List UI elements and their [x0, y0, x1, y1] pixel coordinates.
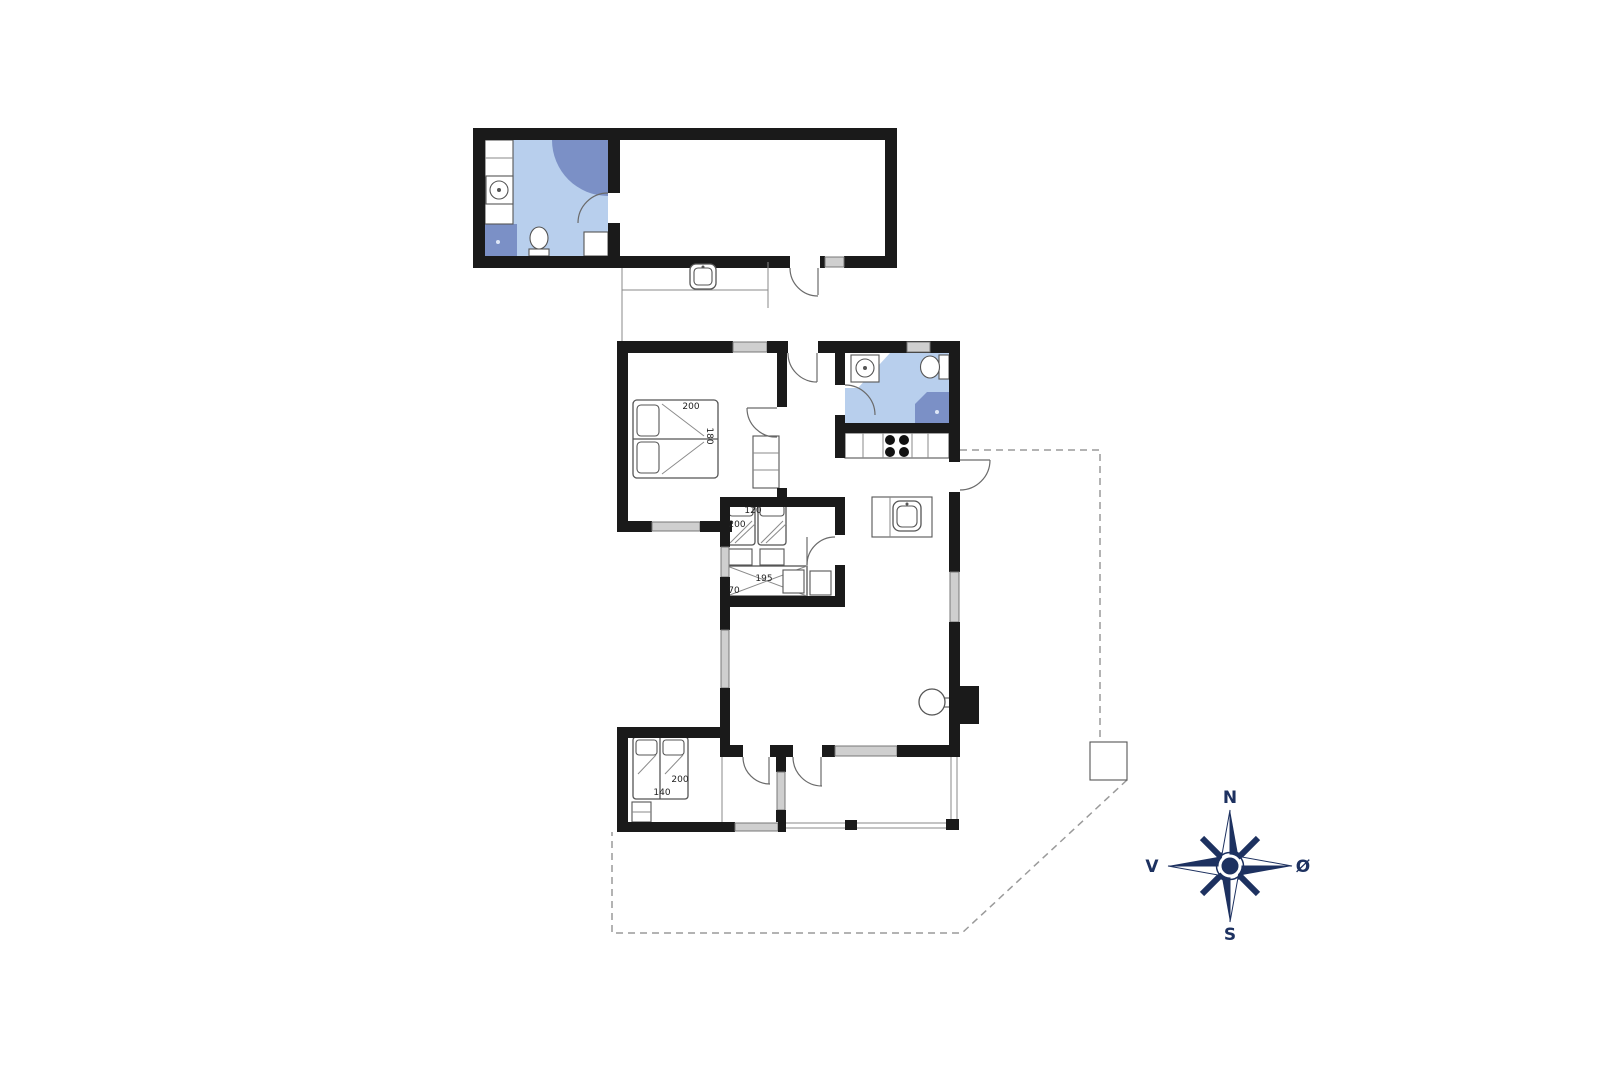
bedroom3-bed-length-label: 200 — [671, 775, 688, 785]
pillow-icon — [637, 405, 659, 436]
porch-door — [793, 757, 822, 786]
entry-hall-door — [743, 757, 770, 784]
annex-entry-door — [790, 268, 818, 296]
wardrobe — [753, 436, 779, 488]
window — [652, 522, 700, 531]
floor-plan-page: N S V Ø 200 180 120 200 195 70 200 140 — [0, 0, 1600, 1066]
annex — [473, 128, 897, 296]
toilet-icon — [921, 355, 950, 379]
bedside-table — [729, 549, 752, 565]
terrace-door — [960, 460, 990, 490]
outdoor-sink-icon — [690, 264, 716, 289]
drain-icon — [935, 410, 939, 414]
bedroom1-width-label: 200 — [682, 402, 699, 412]
annex-shower-floor — [485, 224, 517, 256]
porch-post — [845, 820, 857, 830]
bedroom2-bed-length-label: 200 — [728, 520, 745, 530]
pillow-icon — [637, 442, 659, 473]
bedside-table — [760, 549, 784, 565]
compass-west-label: V — [1145, 857, 1159, 877]
bedroom3-bed-width-label: 140 — [653, 788, 670, 798]
main-house — [617, 341, 990, 832]
annex-window — [825, 257, 844, 267]
window — [950, 572, 959, 622]
window — [835, 746, 897, 756]
bunk-width-label: 70 — [728, 586, 740, 596]
bedroom2-beds — [727, 503, 831, 596]
bedroom2-door — [807, 537, 835, 565]
window — [721, 547, 729, 577]
window — [907, 342, 930, 352]
window — [735, 823, 778, 831]
kitchen-counter — [845, 433, 949, 458]
terrace-table — [1090, 742, 1127, 780]
kitchen-sink-icon — [893, 501, 921, 531]
bedroom1-door — [747, 408, 777, 437]
kitchen — [845, 433, 949, 537]
porch-post — [946, 819, 959, 830]
bedroom1-depth-label: 180 — [704, 427, 714, 444]
cabinet — [810, 571, 831, 595]
window — [733, 342, 767, 352]
compass-north-label: N — [1223, 788, 1237, 808]
compass-south-label: S — [1224, 925, 1236, 945]
floor-plan: N S V Ø 200 180 120 200 195 70 200 140 — [0, 0, 1600, 1066]
compass-rose: N S V Ø — [1145, 788, 1310, 945]
bunk-length-label: 195 — [755, 574, 772, 584]
main-bathroom — [845, 353, 949, 423]
annex-cabinet — [584, 232, 608, 256]
toilet-icon — [529, 227, 549, 256]
covered-porch — [786, 757, 959, 830]
pillow-icon — [663, 740, 684, 755]
pillow-icon — [783, 570, 804, 593]
window — [777, 772, 785, 810]
pillow-icon — [636, 740, 657, 755]
drain-icon — [496, 240, 500, 244]
window — [721, 630, 729, 688]
outdoor-sink-area — [622, 262, 768, 341]
bedroom2-bed-width-label: 120 — [744, 506, 761, 516]
compass-east-label: Ø — [1296, 857, 1310, 877]
main-entrance-door — [788, 353, 817, 382]
